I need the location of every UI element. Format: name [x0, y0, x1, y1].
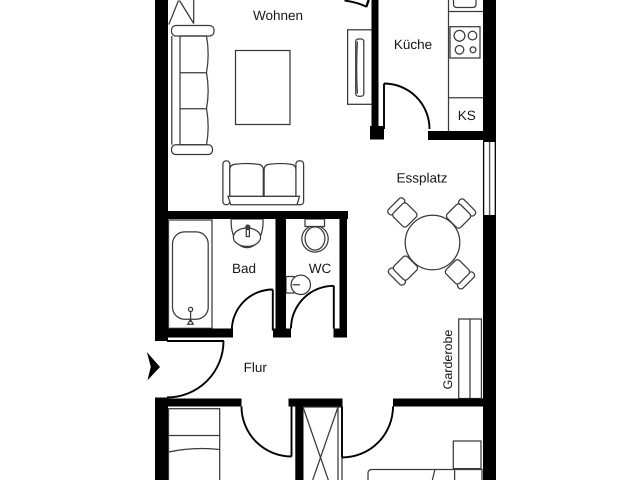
svg-text:Garderobe: Garderobe [441, 330, 455, 390]
svg-text:KS: KS [458, 108, 476, 123]
svg-text:Wohnen: Wohnen [253, 8, 303, 23]
svg-text:Bad: Bad [232, 261, 256, 276]
svg-text:Küche: Küche [394, 37, 432, 52]
svg-text:WC: WC [309, 261, 332, 276]
svg-text:Flur: Flur [244, 360, 268, 375]
svg-text:Essplatz: Essplatz [396, 171, 447, 186]
